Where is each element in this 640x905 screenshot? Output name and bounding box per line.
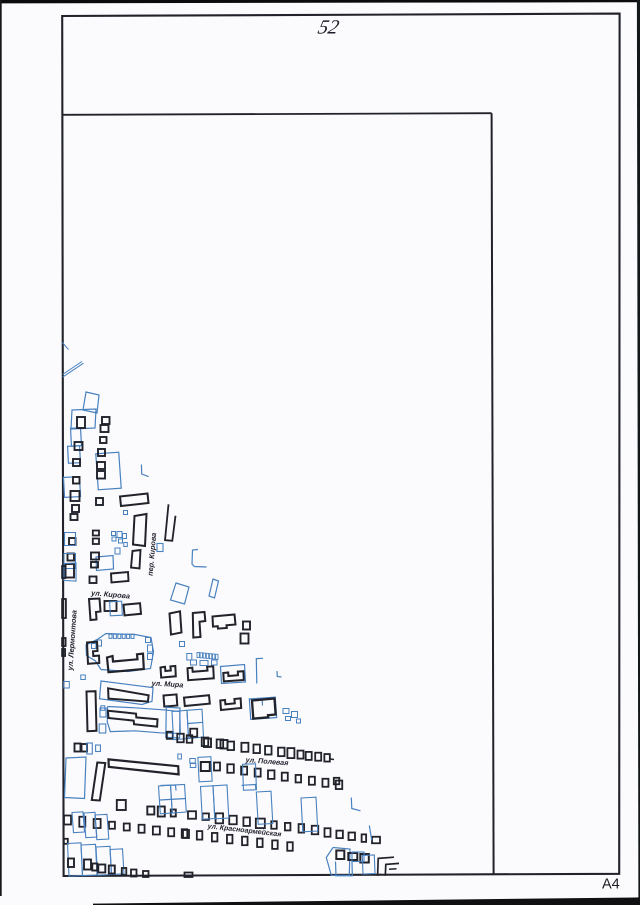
svg-text:A4: A4 — [602, 877, 620, 893]
